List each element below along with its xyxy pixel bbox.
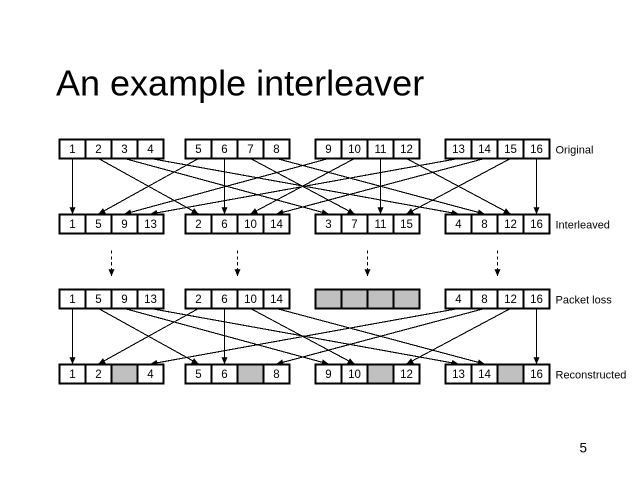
svg-text:16: 16: [530, 294, 543, 306]
svg-text:14: 14: [270, 219, 283, 231]
svg-text:10: 10: [348, 369, 361, 381]
svg-text:14: 14: [270, 294, 283, 306]
svg-text:7: 7: [247, 144, 253, 156]
svg-text:16: 16: [530, 219, 543, 231]
svg-text:12: 12: [504, 219, 517, 231]
svg-text:5: 5: [95, 294, 101, 306]
svg-text:9: 9: [325, 369, 331, 381]
svg-text:15: 15: [400, 219, 413, 231]
svg-text:10: 10: [244, 294, 257, 306]
svg-text:6: 6: [221, 294, 227, 306]
svg-text:5: 5: [195, 144, 201, 156]
svg-text:7: 7: [351, 219, 357, 231]
svg-text:6: 6: [221, 369, 227, 381]
svg-text:10: 10: [348, 144, 361, 156]
svg-text:4: 4: [455, 294, 462, 306]
svg-text:5: 5: [95, 219, 101, 231]
svg-text:9: 9: [325, 144, 331, 156]
svg-text:12: 12: [400, 369, 413, 381]
svg-text:Packet loss: Packet loss: [556, 295, 613, 307]
svg-text:13: 13: [144, 294, 157, 306]
svg-text:14: 14: [478, 144, 491, 156]
svg-text:2: 2: [195, 294, 201, 306]
svg-text:6: 6: [221, 219, 227, 231]
svg-text:An example interleaver: An example interleaver: [56, 63, 424, 104]
svg-text:13: 13: [452, 144, 465, 156]
svg-text:1: 1: [69, 294, 75, 306]
svg-text:6: 6: [221, 144, 227, 156]
svg-text:9: 9: [121, 294, 127, 306]
svg-text:4: 4: [147, 144, 154, 156]
svg-text:8: 8: [273, 144, 279, 156]
svg-text:4: 4: [455, 219, 462, 231]
svg-text:1: 1: [69, 369, 75, 381]
svg-text:16: 16: [530, 369, 543, 381]
svg-text:8: 8: [481, 294, 487, 306]
svg-text:2: 2: [195, 219, 201, 231]
svg-text:12: 12: [400, 144, 413, 156]
svg-text:2: 2: [95, 144, 101, 156]
svg-text:16: 16: [530, 144, 543, 156]
svg-text:5: 5: [195, 369, 201, 381]
svg-text:3: 3: [325, 219, 331, 231]
svg-text:9: 9: [121, 219, 127, 231]
svg-text:8: 8: [273, 369, 279, 381]
svg-text:14: 14: [478, 369, 491, 381]
svg-text:Original: Original: [556, 145, 594, 157]
svg-text:11: 11: [375, 219, 387, 231]
svg-text:8: 8: [481, 219, 487, 231]
svg-text:Interleaved: Interleaved: [556, 220, 610, 232]
svg-text:3: 3: [121, 144, 127, 156]
svg-text:5: 5: [580, 441, 588, 456]
svg-text:1: 1: [69, 219, 75, 231]
svg-text:13: 13: [452, 369, 465, 381]
svg-text:12: 12: [504, 294, 517, 306]
svg-text:13: 13: [144, 219, 157, 231]
svg-text:11: 11: [375, 144, 387, 156]
svg-text:Reconstructed: Reconstructed: [556, 370, 627, 382]
svg-text:10: 10: [244, 219, 257, 231]
svg-text:15: 15: [504, 144, 517, 156]
svg-text:2: 2: [95, 369, 101, 381]
svg-text:1: 1: [69, 144, 75, 156]
svg-text:4: 4: [147, 369, 154, 381]
